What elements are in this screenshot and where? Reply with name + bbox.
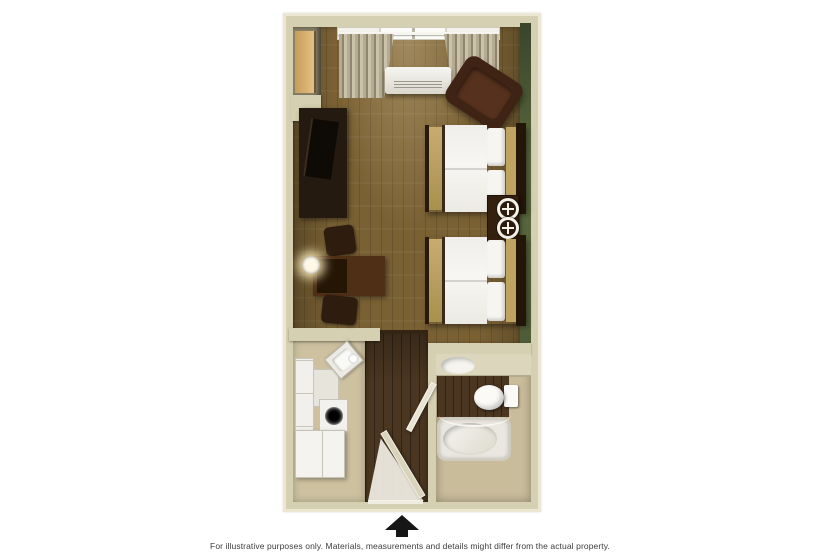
pillow	[487, 128, 505, 166]
floor-plan	[283, 13, 541, 512]
toilet-tank	[504, 385, 518, 407]
bathroom-sink	[441, 357, 475, 374]
bed-headboard	[516, 235, 526, 325]
bed-scarf	[429, 127, 442, 211]
refrigerator-divider	[322, 431, 323, 477]
desk	[313, 256, 385, 296]
closet	[293, 27, 321, 97]
bathroom-left-wall-lower	[428, 419, 436, 502]
bed-duvet	[445, 237, 487, 324]
duvet-crease	[445, 168, 487, 170]
floor-plan-image: For illustrative purposes only. Material…	[0, 0, 820, 560]
double-bed-2	[425, 237, 526, 324]
pillow	[487, 240, 505, 278]
desk-chair-lower	[321, 294, 359, 326]
kitchenette-wall	[289, 328, 380, 341]
up-arrow-icon	[385, 515, 419, 530]
bed-scarf	[429, 239, 442, 323]
closet-door	[295, 31, 316, 93]
ac-unit	[385, 67, 451, 94]
shower-curtain-rod	[439, 403, 511, 427]
up-arrow-stem	[396, 529, 408, 537]
bathroom-top-wall	[428, 343, 531, 354]
bathtub-basin	[443, 423, 497, 455]
desk-chair-upper	[323, 224, 357, 257]
bathroom-left-wall-upper	[428, 343, 436, 377]
pillow	[487, 282, 505, 320]
tv	[303, 118, 339, 179]
duvet-crease	[445, 280, 487, 282]
desk-item	[317, 259, 347, 293]
ac-grille	[394, 79, 442, 88]
bed-accent-pillow	[506, 239, 516, 323]
refrigerator	[295, 430, 345, 478]
disclaimer-text: For illustrative purposes only. Material…	[0, 541, 820, 551]
tv-dresser	[299, 108, 347, 218]
stove-burner	[325, 407, 343, 425]
bed-duvet	[445, 125, 487, 212]
stove	[319, 399, 348, 432]
wall-lamp	[302, 256, 320, 274]
